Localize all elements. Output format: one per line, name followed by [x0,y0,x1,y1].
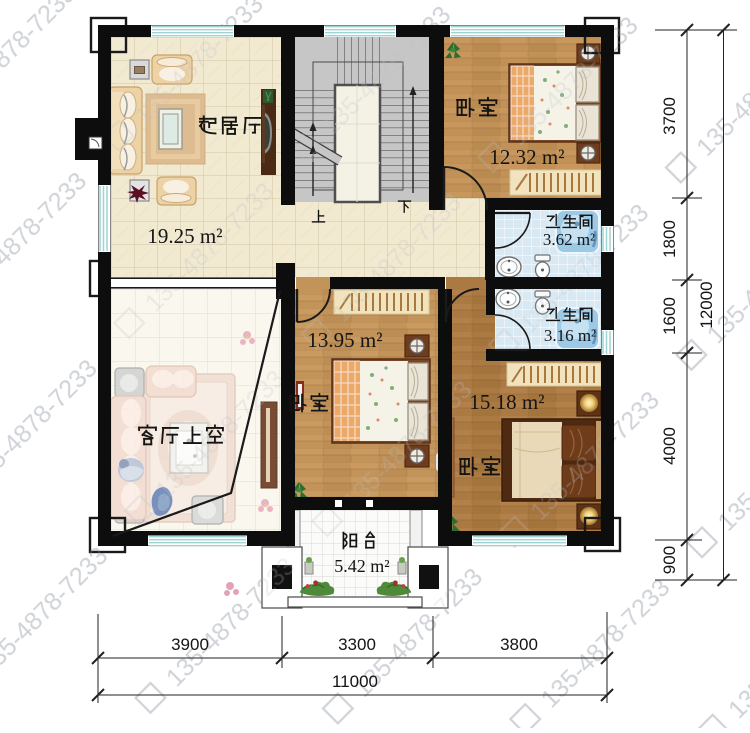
svg-text:11000: 11000 [332,672,378,691]
svg-text:4000: 4000 [660,427,679,465]
svg-text:1800: 1800 [660,220,679,258]
svg-text:900: 900 [660,546,679,574]
svg-text:12.32 m²: 12.32 m² [489,145,564,169]
svg-text:13.95 m²: 13.95 m² [307,328,382,352]
svg-text:3.62 m²: 3.62 m² [543,230,595,249]
svg-text:19.25 m²: 19.25 m² [147,224,222,248]
svg-text:1600: 1600 [660,297,679,335]
svg-text:3.16 m²: 3.16 m² [544,326,596,345]
svg-text:15.18 m²: 15.18 m² [469,390,544,414]
svg-text:3700: 3700 [660,97,679,135]
svg-text:12000: 12000 [697,281,716,328]
svg-text:3800: 3800 [500,635,538,654]
svg-text:3900: 3900 [171,635,209,654]
svg-text:5.42 m²: 5.42 m² [334,556,389,576]
svg-text:3300: 3300 [338,635,376,654]
